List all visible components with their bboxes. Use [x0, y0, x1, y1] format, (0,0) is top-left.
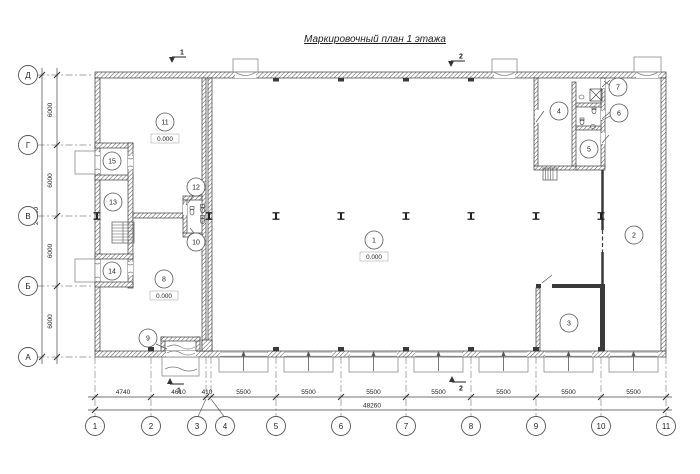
break-line: [167, 345, 195, 349]
grid-label-col-3: 3: [195, 422, 200, 431]
wall-opening: [636, 72, 658, 78]
section-mark-arrow-4: [449, 376, 455, 382]
toilet-icon: [580, 119, 584, 125]
pilaster: [148, 347, 154, 352]
room-number-13: 13: [109, 200, 117, 207]
dim-label-bottom-3: 5500: [236, 389, 251, 396]
dim-label-left-2: 6000: [47, 243, 54, 258]
pilaster: [403, 347, 409, 352]
wall: [95, 282, 133, 287]
floor-plan-page: 6000600060006000240004740461041055005500…: [0, 0, 700, 474]
grid-label-row-1: Д: [25, 71, 31, 80]
section-mark-arrow-1: [169, 57, 175, 63]
wall-opening: [235, 72, 256, 78]
dim-label-bottom-8: 5500: [561, 389, 576, 396]
toilet-icon: [190, 209, 194, 215]
room-number-6: 6: [617, 111, 621, 118]
dim-label-left-1: 6000: [47, 173, 54, 188]
grid-label-col-10: 10: [597, 422, 606, 431]
room-number-9: 9: [146, 336, 150, 343]
dim-label-bottom-6: 5500: [431, 389, 446, 396]
grid-label-row-4: Б: [25, 282, 30, 291]
column-web: [470, 213, 472, 219]
pilaster: [338, 78, 344, 82]
floor-plan-drawing: 6000600060006000240004740461041055005500…: [0, 0, 700, 474]
room-number-7: 7: [616, 85, 620, 92]
column-web: [600, 213, 602, 219]
wall: [133, 213, 183, 218]
grid-label-col-5: 5: [274, 422, 279, 431]
wall: [661, 78, 666, 351]
grid-label-col-6: 6: [339, 422, 344, 431]
wall: [95, 143, 133, 148]
wall-opening: [128, 262, 133, 275]
wall: [95, 254, 133, 259]
column-web: [208, 213, 210, 219]
room-number-8: 8: [162, 277, 166, 284]
toilet-icon: [592, 108, 596, 114]
column-web: [275, 213, 277, 219]
porch-outline: [75, 151, 95, 174]
grid-label-col-4: 4: [223, 422, 228, 431]
room-number-3: 3: [567, 321, 571, 328]
room-number-11: 11: [161, 120, 168, 127]
dim-label-bottom-7: 5500: [496, 389, 511, 396]
dim-label-bottom-5: 5500: [366, 389, 381, 396]
dim-label-left-3: 6000: [47, 314, 54, 329]
grid-label-col-11: 11: [662, 422, 671, 431]
column-web: [535, 213, 537, 219]
dim-label-bottom-2: 410: [202, 389, 213, 396]
elevation-label-8: 0.000: [156, 293, 172, 300]
room-number-1: 1: [372, 238, 376, 245]
section-mark-arrow-2: [448, 61, 454, 67]
grid-label-col-1: 1: [93, 422, 98, 431]
axis-circles: ДГВБА1234567891011: [19, 66, 676, 436]
pilaster: [468, 78, 474, 82]
room-leader-10: [190, 228, 194, 233]
pilaster: [533, 347, 539, 352]
wall-opening: [183, 205, 187, 215]
section-mark-label-1: 1: [180, 50, 184, 57]
section-mark-arrow-3: [167, 378, 173, 384]
wall: [202, 78, 206, 351]
porch-outline: [634, 57, 661, 72]
column-web: [340, 213, 342, 219]
wall: [601, 78, 605, 167]
dim-label-bottom-total: 48260: [363, 403, 381, 410]
grid-label-col-7: 7: [404, 422, 409, 431]
porch-outline: [162, 357, 199, 376]
wall: [95, 175, 133, 180]
room-number-4: 4: [557, 109, 561, 116]
wall-opening: [166, 351, 196, 357]
room-number-2: 2: [632, 233, 636, 240]
wall: [161, 337, 200, 341]
wall-opening: [541, 283, 552, 289]
drawing-title: Маркировочный план 1 этажа: [304, 34, 446, 45]
column-web: [96, 213, 98, 219]
dim-label-bottom-0: 4740: [116, 389, 131, 396]
col-leader-3: [198, 399, 206, 417]
wall: [95, 72, 666, 78]
pilaster: [598, 347, 604, 352]
dim-label-bottom-9: 5500: [626, 389, 641, 396]
wall: [576, 103, 601, 107]
wall: [536, 288, 540, 351]
wall-opening: [128, 156, 133, 169]
room-number-14: 14: [108, 269, 116, 276]
wall: [202, 340, 212, 351]
column-web: [405, 213, 407, 219]
page-title: Маркировочный план 1 этажа: [304, 34, 446, 45]
grid-label-row-3: В: [25, 212, 30, 221]
wall-opening: [494, 72, 515, 78]
section-mark-label-2: 2: [459, 54, 463, 61]
grid-label-row-2: Г: [26, 141, 31, 150]
porch-outline: [75, 259, 95, 282]
wall: [572, 82, 576, 166]
room-number-10: 10: [192, 240, 200, 247]
pilaster: [273, 78, 279, 82]
elevation-label-11: 0.000: [157, 136, 173, 143]
grid-label-row-5: А: [25, 353, 31, 362]
grid-label-col-2: 2: [149, 422, 154, 431]
pilaster: [338, 347, 344, 352]
room-number-15: 15: [108, 159, 116, 166]
door-leaf: [542, 275, 552, 283]
section-mark-label-4: 2: [459, 386, 463, 393]
section-mark-label-3: 1: [177, 388, 181, 395]
toilet-icon: [579, 95, 584, 99]
pilaster: [273, 347, 279, 352]
partition-wall: [600, 288, 605, 351]
wall: [576, 126, 601, 130]
break-line: [165, 367, 197, 371]
wall: [576, 166, 605, 170]
elevation-label-1: 0.000: [366, 254, 382, 261]
wall-opening: [601, 79, 605, 88]
dim-label-left-0: 6000: [47, 102, 54, 117]
dim-label-bottom-4: 5500: [301, 389, 316, 396]
col-leader-4: [211, 399, 224, 417]
pilaster: [468, 347, 474, 352]
pilaster: [403, 78, 409, 82]
wall-opening: [601, 111, 605, 120]
walls: [95, 72, 666, 357]
room-number-12: 12: [192, 185, 200, 192]
porch-outline: [492, 59, 517, 72]
room-number-5: 5: [587, 147, 591, 154]
porch-outline: [233, 59, 258, 72]
grid-label-col-8: 8: [469, 422, 474, 431]
grid-label-col-9: 9: [534, 422, 539, 431]
wall: [183, 200, 187, 233]
